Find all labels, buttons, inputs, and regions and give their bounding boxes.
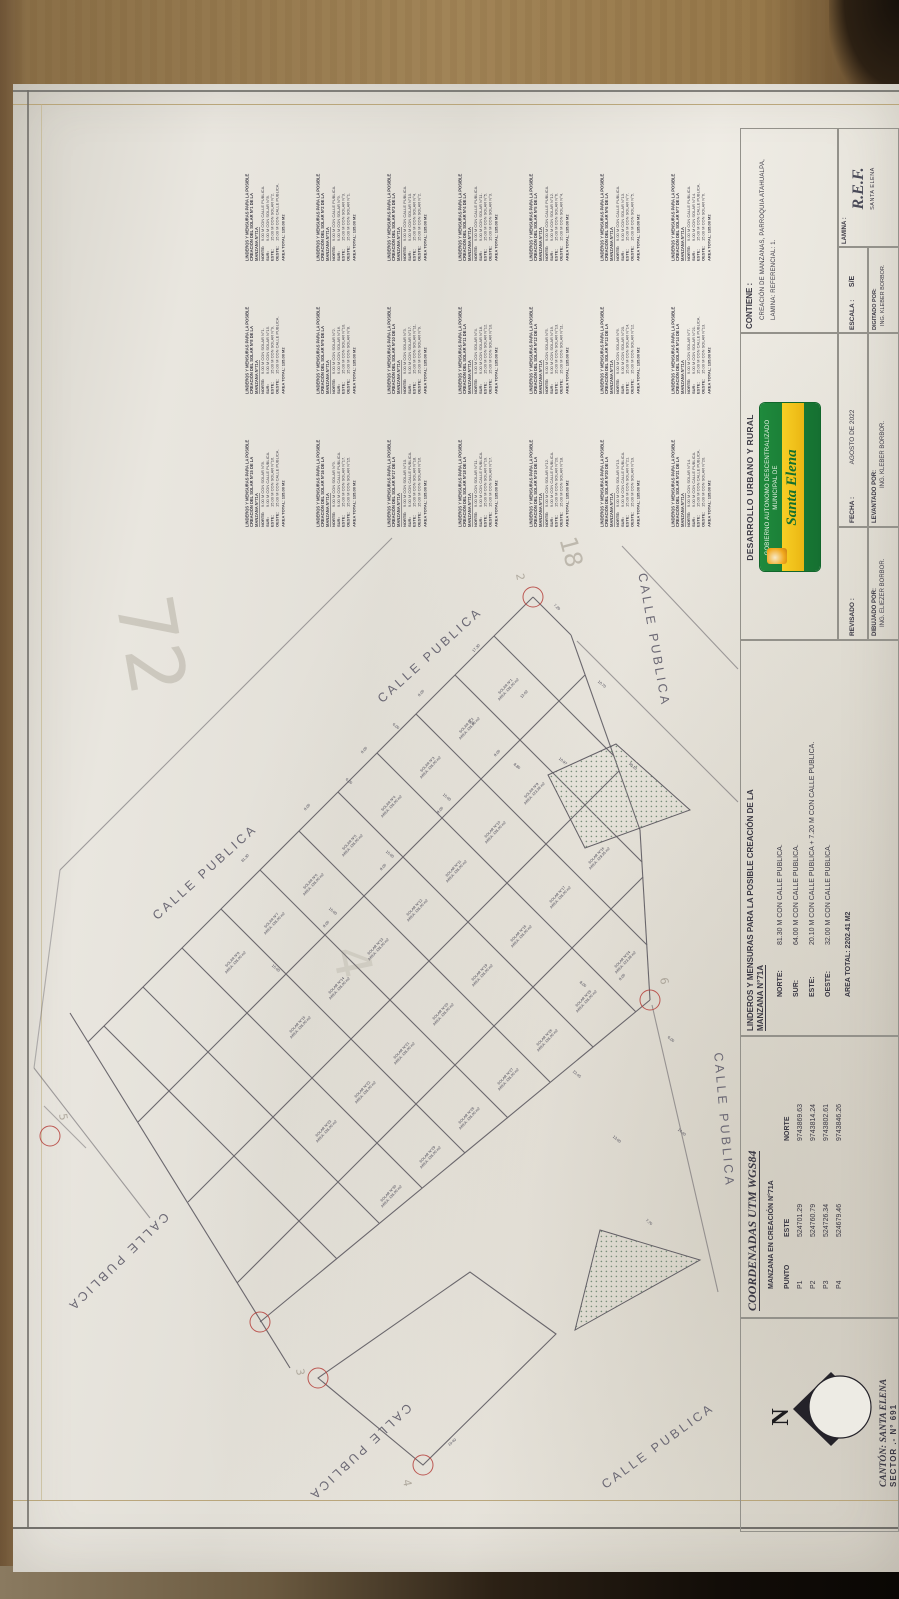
levantado-label: LEVANTADO POR:	[869, 334, 878, 528]
santa-elena-logo: GOBIERNO AUTONOMO DESCENTRALIZADO MUNICI…	[760, 404, 820, 572]
street-label: CALLE PUBLICA	[375, 604, 485, 705]
street-label: CALLE PUBLICA	[599, 1400, 717, 1491]
canton-line1: CANTÓN: SANTA ELENA	[879, 1319, 889, 1487]
linderos-entry: LINDEROS Y MENSURAS PARA LA POSIBLECREAC…	[529, 128, 600, 261]
lot-label: SOLAR N°1AREA: 135.00 m2	[494, 675, 520, 702]
dimension-label: 15.00	[271, 963, 281, 973]
box-levantado: LEVANTADO POR: ING. KLEBER BORBOR.	[868, 333, 899, 527]
lot-label: SOLAR N°22AREA: 135.00 m2	[351, 1078, 377, 1105]
contiene-line1: CREACIÓN DE MANZANAS, PARROQUIA ATAHUALP…	[754, 129, 766, 334]
linderos-manzana-title2: MANZANA N°71A	[756, 965, 766, 1031]
dimension-label: 10.97	[558, 756, 568, 766]
linderos-entry: LINDEROS Y MENSURAS PARA LA POSIBLECREAC…	[316, 128, 387, 261]
north-compass-icon: N	[741, 1319, 899, 1533]
lot-label: SOLAR N°4AREA: 135.00 m2	[377, 792, 403, 819]
digitado-value: ING. KLEBER BORBOR.	[878, 248, 886, 334]
vertex-pencil-number: 6	[657, 976, 671, 985]
vertex-circle	[250, 1312, 271, 1333]
street-label: CALLE PUBLICA	[635, 572, 672, 708]
linderos-entry: LINDEROS Y MENSURAS PARA LA POSIBLECREAC…	[458, 261, 529, 394]
linderos-manzana-rows: NORTE:81.30 M CON CALLE PUBLICA.SUR:64.0…	[765, 641, 837, 1037]
lot-label: SOLAR N°29AREA: 135.00 m2	[416, 1143, 442, 1170]
street-label: CALLE PUBLICA	[711, 1052, 737, 1188]
lot-label: SOLAR N°23AREA: 135.00 m2	[312, 1117, 338, 1144]
vertex-pencil-number: 4	[400, 1478, 414, 1487]
lot-label: SOLAR N°17AREA: 135.00 m2	[546, 883, 572, 910]
box-coordenadas: COORDENADAS UTM WGS84 MANZANA EN CREACIÓ…	[740, 1036, 899, 1318]
dimension-label: 8.00	[303, 803, 311, 811]
dimension-label: 10.70	[597, 679, 607, 689]
linderos-entry: LINDEROS Y MENSURAS PARA LA POSIBLECREAC…	[245, 128, 316, 261]
street-label: CALLE PUBLICA	[64, 1210, 171, 1314]
dimension-label: 7.20	[553, 603, 561, 611]
linderos-entry: LINDEROS Y MENSURAS PARA LA POSIBLECREAC…	[387, 128, 458, 261]
pencil-mark: 18	[554, 534, 589, 571]
dimension-label: 9.00	[493, 749, 501, 757]
dimension-label: 22.45	[572, 1069, 582, 1079]
coordenadas-table-row: P4524679.469743846.26	[833, 1037, 846, 1289]
coordenadas-table-row: P3524726.349743802.61	[820, 1037, 833, 1289]
dimension-label: 8.00	[579, 980, 588, 988]
pencil-mark: 72	[97, 588, 203, 701]
lot-label: SOLAR N°7AREA: 135.00 m2	[260, 909, 286, 936]
dimension-label: 13.00	[612, 1134, 622, 1144]
box-dibujado: DIBUJADO POR: ING. ELIEZER BORBOR.	[868, 527, 899, 640]
linderos-entry: LINDEROS Y MENSURAS PARA LA POSIBLECREAC…	[245, 261, 316, 394]
linderos-manzana-title1: LINDEROS Y MENSURAS PARA LA POSIBLE CREA…	[741, 641, 755, 1037]
coordenadas-title: COORDENADAS UTM WGS84	[745, 1151, 760, 1311]
street-label: CALLE PUBLICA	[150, 821, 260, 922]
vertex-circle	[523, 587, 544, 608]
lot-label: SOLAR N°19AREA: 135.00 m2	[468, 961, 494, 988]
dibujado-label: DIBUJADO POR:	[869, 528, 878, 641]
dimension-label: 19.40	[447, 1437, 457, 1447]
contiene-label: CONTIENE :	[741, 129, 754, 334]
dimension-label: 15.00	[385, 849, 395, 859]
linderos-manzana-row: ESTE:20.10 M CON CALLE PUBLICA + 7.20 M …	[805, 641, 821, 997]
lot-label: SOLAR N°28AREA: 135.00 m2	[455, 1104, 481, 1131]
lot-label: SOLAR N°6AREA: 135.00 m2	[299, 870, 325, 897]
dimension-label: 9.00	[379, 863, 387, 871]
lot-label: SOLAR N°24AREA: 123.38 m2	[611, 948, 637, 975]
lot-label: SOLAR N°27AREA: 135.00 m2	[494, 1065, 520, 1092]
lot-label: SOLAR N°11AREA: 135.00 m2	[442, 857, 468, 884]
vertex-circle	[640, 990, 661, 1011]
vertex-pencil-number: 2	[513, 572, 527, 581]
coordenadas-subtitle: MANZANA EN CREACIÓN N°71A	[760, 1037, 775, 1319]
box-digitado: DIGITADO POR: ING. KLEBER BORBOR.	[868, 247, 899, 333]
linderos-solares-block: LINDEROS Y MENSURAS PARA LA POSIBLECREAC…	[245, 128, 742, 527]
linderos-entry: LINDEROS Y MENSURAS PARA LA POSIBLECREAC…	[316, 261, 387, 394]
dimension-label: 13.02	[519, 689, 529, 699]
box-canton-compass: N CANTÓN: SANTA ELENA SECTOR .- N° 691	[740, 1318, 899, 1532]
dibujado-value: ING. ELIEZER BORBOR.	[878, 528, 886, 641]
dimension-label: 7.70	[645, 1218, 654, 1226]
vertex-circle	[308, 1368, 329, 1389]
coordenadas-table-row: P1524701.299743869.63	[794, 1037, 807, 1289]
box-revisado: REVISADO :	[838, 527, 868, 640]
lot-label: SOLAR N°3AREA: 135.00 m2	[416, 753, 442, 780]
contiene-line2: LAMINA: REFERENCIAL: 1.	[766, 129, 777, 334]
linderos-entry: LINDEROS Y MENSURAS PARA LA POSIBLECREAC…	[387, 261, 458, 394]
lot-label: SOLAR N°15AREA: 135.00 m2	[286, 1013, 312, 1040]
lamina-label: LAMINA :	[839, 129, 848, 248]
lamina-ref-handwritten: R.E.F.	[850, 129, 868, 248]
escala-value: S/E	[849, 276, 856, 295]
dimension-label: 15.00	[328, 906, 338, 916]
dimension-label: 9.00	[322, 920, 330, 928]
linderos-entry: LINDEROS Y MENSURAS PARA LA POSIBLECREAC…	[600, 128, 671, 261]
linderos-manzana-row: OESTE:32.00 M CON CALLE PUBLICA.	[821, 641, 837, 997]
box-fecha: FECHA : AGOSTO DE 2022	[838, 333, 868, 527]
linderos-entry: LINDEROS Y MENSURAS PARA LA POSIBLECREAC…	[529, 261, 600, 394]
fecha-label: FECHA :	[849, 497, 856, 528]
lot-label: SOLAR N°21AREA: 135.00 m2	[390, 1039, 416, 1066]
linderos-manzana-row: NORTE:81.30 M CON CALLE PUBLICA.	[773, 641, 789, 997]
coordenadas-table-row: P2524760.799743814.24	[807, 1037, 820, 1289]
linderos-manzana-row: SUR:64.00 M CON CALLE PUBLICA.	[789, 641, 805, 997]
linderos-entry: LINDEROS Y MENSURAS PARA LA POSIBLECREAC…	[671, 128, 742, 261]
lot-label: SOLAR N°9AREA: 123.38 m2	[520, 779, 546, 806]
vertex-pencil-number: 3	[293, 1367, 307, 1376]
linderos-entry: LINDEROS Y MENSURAS PARA LA POSIBLECREAC…	[458, 394, 529, 527]
linderos-entry: LINDEROS Y MENSURAS PARA LA POSIBLECREAC…	[671, 394, 742, 527]
dimension-label: 15.00	[442, 792, 452, 802]
lot-label: SOLAR N°16AREA: 129.35 m2	[585, 844, 611, 871]
vertex-pencil-number: 5	[56, 1112, 70, 1121]
logo-org-text: GOBIERNO AUTONOMO DESCENTRALIZADO MUNICI…	[760, 404, 780, 572]
lot-label: SOLAR N°12AREA: 135.00 m2	[403, 896, 429, 923]
street-label: CALLE PUBLICA	[306, 1401, 415, 1504]
linderos-entry: LINDEROS Y MENSURAS PARA LA POSIBLECREAC…	[316, 394, 387, 527]
lot-label: SOLAR N°2AREA: 135.00 m2	[455, 714, 481, 741]
pencil-mark: 4	[320, 940, 383, 983]
dimension-label: 81.30	[240, 853, 250, 863]
santa-elena-logo-emblem-icon	[767, 549, 787, 565]
canton-line2: SECTOR .- N° 691	[889, 1319, 898, 1487]
dimension-label: 30.10	[628, 761, 638, 771]
lot-label: SOLAR N°26AREA: 135.00 m2	[533, 1026, 559, 1053]
linderos-entry: LINDEROS Y MENSURAS PARA LA POSIBLECREAC…	[387, 394, 458, 527]
linderos-entry: LINDEROS Y MENSURAS PARA LA POSIBLECREAC…	[671, 261, 742, 394]
revisado-label: REVISADO :	[849, 598, 856, 641]
dimension-label: 9.00	[436, 806, 444, 814]
dimension-label: 17.30	[471, 643, 481, 653]
lot-label: SOLAR N°8AREA: 135.00 m2	[221, 948, 247, 975]
dimension-label: 6.00	[667, 1035, 676, 1043]
box-linderos-manzana: LINDEROS Y MENSURAS PARA LA POSIBLE CREA…	[740, 640, 899, 1036]
box-contiene: CONTIENE : CREACIÓN DE MANZANAS, PARROQU…	[740, 128, 838, 333]
vertex-circle	[40, 1126, 61, 1147]
lot-label: SOLAR N°5AREA: 135.00 m2	[338, 831, 364, 858]
lot-label: SOLAR N°10AREA: 135.00 m2	[481, 818, 507, 845]
linderos-entry: LINDEROS Y MENSURAS PARA LA POSIBLECREAC…	[529, 394, 600, 527]
dimension-label: 6.00	[345, 777, 354, 785]
linderos-entry: LINDEROS Y MENSURAS PARA LA POSIBLECREAC…	[600, 394, 671, 527]
dimension-label: 8.80	[513, 762, 522, 770]
lamina-sub: SANTA ELENA	[870, 129, 876, 248]
logo-name-text: Santa Elena	[784, 449, 800, 525]
dimension-label: 14.40	[677, 1127, 687, 1137]
box-lamina: LAMINA : R.E.F. SANTA ELENA	[838, 128, 899, 247]
linderos-entry: LINDEROS Y MENSURAS PARA LA POSIBLECREAC…	[600, 261, 671, 394]
lot-label: SOLAR N°20AREA: 135.00 m2	[429, 1000, 455, 1027]
linderos-entry: LINDEROS Y MENSURAS PARA LA POSIBLECREAC…	[458, 128, 529, 261]
fecha-value: AGOSTO DE 2022	[849, 410, 856, 493]
linderos-manzana-area: AREA TOTAL: 2202.41 M2	[841, 641, 857, 1037]
coordenadas-table-row: PUNTOESTENORTE	[781, 1037, 794, 1289]
dimension-label: 8.00	[417, 689, 425, 697]
svg-text:N: N	[768, 1408, 794, 1426]
lot-label: SOLAR N°25AREA: 135.00 m2	[572, 987, 598, 1014]
dimension-label: 6.00	[392, 722, 401, 730]
dimension-label: 8.00	[618, 973, 626, 981]
vertex-circle	[413, 1455, 434, 1476]
box-departamento: DESARROLLO URBANO Y RURAL GOBIERNO AUTON…	[740, 333, 838, 640]
box-escala: ESCALA : S/E	[838, 247, 868, 333]
levantado-value: ING. KLEBER BORBOR.	[878, 334, 886, 528]
digitado-label: DIGITADO POR:	[869, 248, 878, 334]
photographed-plan-sheet: CALLE PUBLICACALLE PUBLICACALLE PUBLICAC…	[0, 0, 899, 1599]
escala-label: ESCALA :	[849, 300, 856, 334]
lot-label: SOLAR N°30AREA: 135.00 m2	[377, 1182, 403, 1209]
departamento-title: DESARROLLO URBANO Y RURAL	[741, 334, 755, 641]
dimension-label: 8.00	[360, 746, 368, 754]
coordenadas-table: PUNTOESTENORTEP1524701.299743869.63P2524…	[775, 1037, 846, 1319]
lot-label: SOLAR N°18AREA: 135.00 m2	[507, 922, 533, 949]
linderos-entry: LINDEROS Y MENSURAS PARA LA POSIBLECREAC…	[245, 394, 316, 527]
